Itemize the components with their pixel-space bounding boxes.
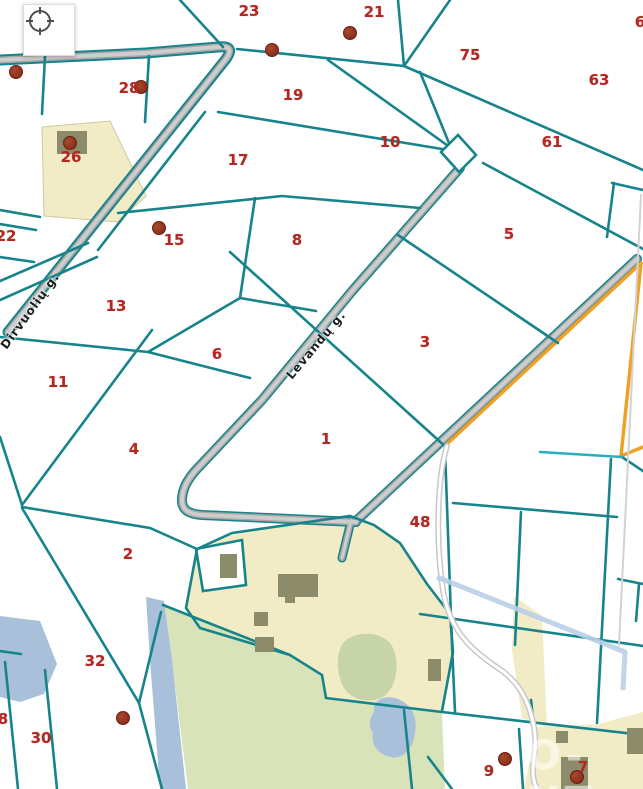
parcel-number: 13	[106, 297, 127, 315]
parcel-number: 8	[0, 710, 8, 728]
parcel-number: 48	[410, 513, 431, 531]
parcel-number: 32	[85, 652, 106, 670]
marker-dot	[498, 752, 512, 766]
forest-dark-patch	[338, 634, 397, 701]
parcel-number: 15	[164, 231, 185, 249]
marker-dot	[343, 26, 357, 40]
parcel-number: 1	[321, 430, 331, 448]
parcel-number: 8	[292, 231, 302, 249]
parcel-number: 10	[380, 133, 401, 151]
parcel-number: 17	[228, 151, 249, 169]
parcel-number: 11	[48, 373, 69, 391]
marker-dot	[265, 43, 279, 57]
parcel-number: 4	[129, 440, 139, 458]
map-layers	[0, 0, 643, 789]
parcel-number: 19	[283, 86, 304, 104]
building	[285, 596, 295, 603]
parcel-number: 23	[239, 2, 260, 20]
watermark: O-NT	[527, 733, 643, 789]
parcel-number: 21	[364, 3, 385, 21]
map-canvas[interactable]: O-NT 23216756328191061261722158513361114…	[0, 0, 643, 789]
parcel-number: 28	[119, 79, 140, 97]
orange-boundary-lines	[447, 263, 643, 456]
parcel-number: 26	[61, 148, 82, 166]
parcel-boundaries-bright	[540, 452, 622, 457]
locate-button[interactable]	[23, 4, 75, 56]
parcel-number: 30	[31, 729, 52, 747]
building	[278, 574, 318, 597]
marker-dot	[116, 711, 130, 725]
building	[254, 612, 268, 626]
parcel-number: 22	[0, 227, 16, 245]
parcel-number: 5	[504, 225, 514, 243]
building	[428, 659, 441, 681]
crosshair-icon	[24, 5, 56, 37]
building	[220, 554, 237, 578]
building	[255, 637, 274, 652]
parcel-number: 3	[420, 333, 430, 351]
parcel-number: 2	[123, 545, 133, 563]
parcel-number: 61	[542, 133, 563, 151]
parcel-number: 75	[460, 46, 481, 64]
marker-dot	[9, 65, 23, 79]
parcel-number: 6	[635, 13, 643, 31]
parcel-number: 9	[484, 762, 494, 780]
parcel-number: 6	[212, 345, 222, 363]
parcel-number: 63	[589, 71, 610, 89]
